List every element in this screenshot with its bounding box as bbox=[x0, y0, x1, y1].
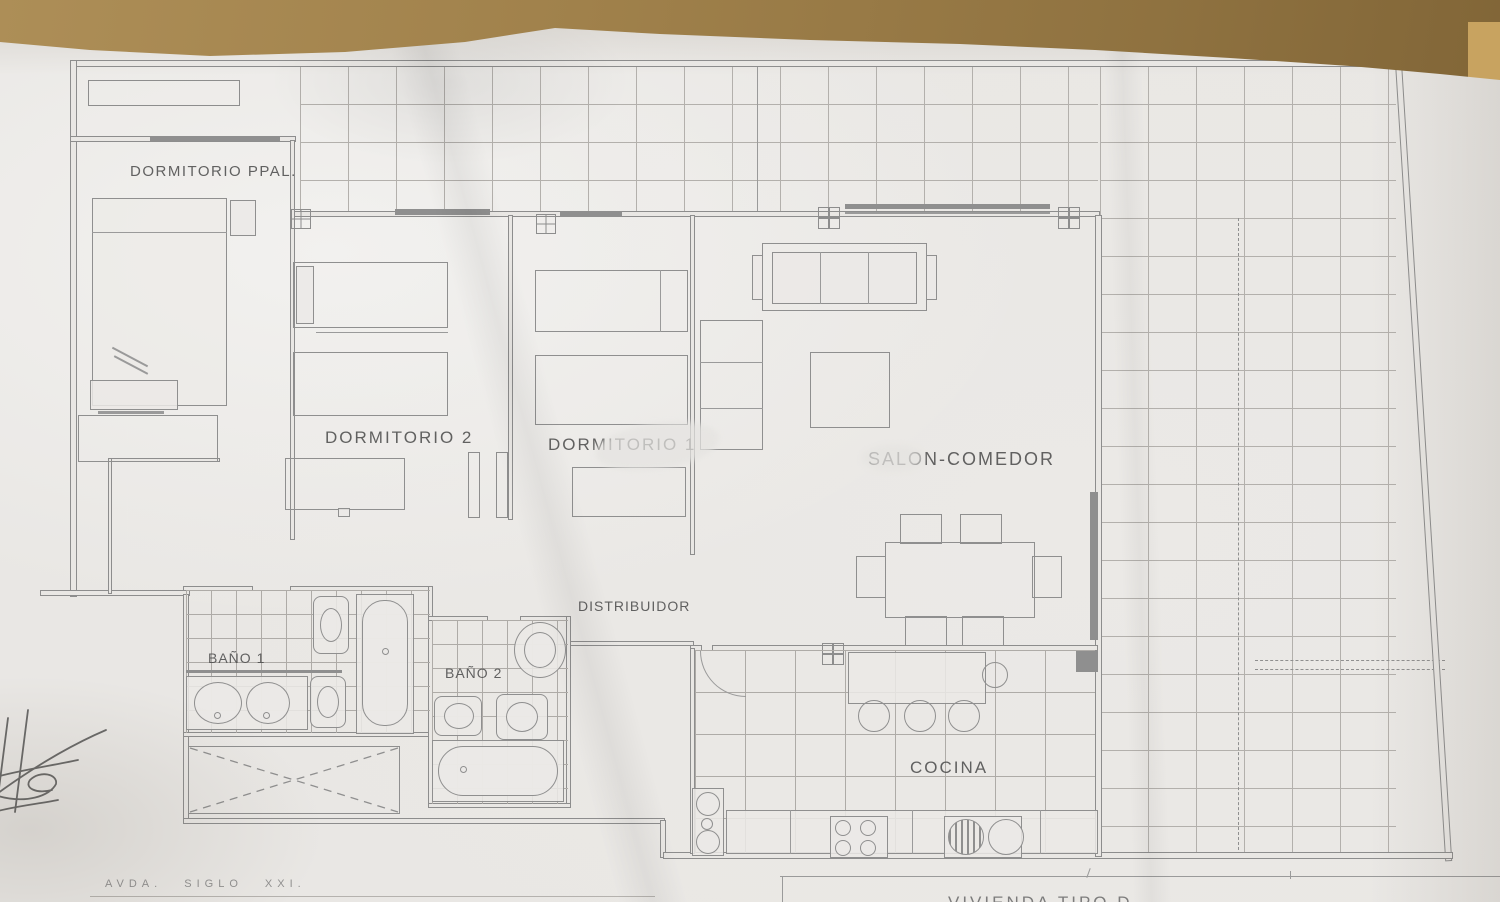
wall-segment bbox=[690, 215, 695, 555]
sink-tap bbox=[214, 712, 221, 719]
terrace-tiles-top bbox=[300, 66, 1098, 213]
bathtub-basin bbox=[362, 600, 408, 726]
photo-of-floor-plan: { "photo": { "surface": "wood-table", "c… bbox=[0, 0, 1500, 902]
smudge-over-salon-label bbox=[862, 445, 924, 471]
sink-tap bbox=[263, 712, 270, 719]
wall-segment bbox=[566, 641, 694, 646]
nightstand bbox=[230, 200, 256, 236]
wardrobe-dorm1 bbox=[572, 467, 686, 517]
window-salon bbox=[845, 204, 1050, 209]
bathtub-drain bbox=[382, 648, 389, 655]
sofa-armrest bbox=[752, 255, 763, 300]
wall-segment bbox=[468, 452, 480, 518]
bathtub-drain bbox=[460, 766, 467, 773]
title-block-partial: VIVIENDA TIPO D bbox=[948, 893, 1288, 902]
dining-table bbox=[885, 542, 1035, 618]
stove-burner bbox=[835, 820, 851, 836]
bed-master bbox=[92, 198, 227, 406]
sofa-divider bbox=[868, 252, 869, 304]
column-marker bbox=[818, 207, 840, 229]
sofa-divider bbox=[820, 252, 821, 304]
room-label-cocina: COCINA bbox=[910, 758, 988, 778]
terrace-tiles-right bbox=[1100, 66, 1396, 852]
stove-burner bbox=[860, 840, 876, 856]
cabinet-burner bbox=[696, 830, 720, 854]
paper-sheet: DORMITORIO PPAL. DORMITORIO 2 DORMITORIO… bbox=[0, 0, 1500, 902]
kitchen-stool bbox=[982, 662, 1008, 688]
sink-bowl bbox=[524, 632, 556, 668]
chair bbox=[962, 616, 1004, 646]
window-dorm1 bbox=[560, 211, 622, 217]
wall-segment bbox=[183, 818, 665, 824]
armchair-line bbox=[700, 362, 763, 363]
chair bbox=[900, 514, 942, 544]
wall-segment bbox=[70, 60, 1415, 67]
terrace-divider-line bbox=[757, 66, 758, 213]
column-marker bbox=[536, 214, 556, 234]
wall-segment bbox=[40, 590, 190, 596]
storage-closet-cross bbox=[188, 746, 400, 814]
wall-segment bbox=[496, 452, 508, 518]
kitchen-stool bbox=[858, 700, 890, 732]
counter-divider bbox=[912, 810, 913, 854]
room-label-distribuidor: DISTRIBUIDOR bbox=[578, 598, 690, 614]
wardrobe-dorm2 bbox=[285, 458, 405, 510]
bed-dorm1-1 bbox=[535, 270, 688, 332]
window-salon-line bbox=[845, 212, 1050, 214]
counter-divider bbox=[1040, 810, 1041, 854]
toilet-bowl bbox=[320, 608, 342, 642]
cabinet-burner bbox=[696, 792, 720, 816]
bidet-bowl bbox=[506, 702, 538, 732]
chair bbox=[960, 514, 1002, 544]
kitchen-stool bbox=[904, 700, 936, 732]
dresser bbox=[90, 380, 178, 410]
stove-burner bbox=[860, 820, 876, 836]
planter-box bbox=[88, 80, 240, 106]
bidet-bowl bbox=[317, 686, 339, 718]
title-block-partial-label: VIVIENDA TIPO D bbox=[948, 893, 1133, 902]
window-master bbox=[150, 136, 280, 141]
column-marker bbox=[291, 209, 311, 229]
sofa-seat bbox=[772, 252, 917, 304]
armchair-line bbox=[700, 408, 763, 409]
title-block-top-line bbox=[780, 876, 1500, 877]
bed-dorm2-1-pillow bbox=[296, 266, 314, 324]
chair bbox=[856, 556, 886, 598]
cabinet-burner-small bbox=[701, 818, 713, 830]
sofa-armrest bbox=[926, 255, 937, 300]
title-block-tick bbox=[1290, 871, 1291, 879]
kitchen-stool bbox=[948, 700, 980, 732]
terrace-dashed-line-1 bbox=[1255, 660, 1445, 661]
street-underline bbox=[90, 896, 655, 897]
signature-scribble bbox=[0, 700, 112, 820]
terrace-dashed-line-vertical bbox=[1238, 218, 1239, 850]
stove-burner bbox=[835, 840, 851, 856]
table-object bbox=[1468, 22, 1500, 86]
bed-dorm2-2 bbox=[293, 352, 448, 416]
room-label-bano-2: BAÑO 2 bbox=[445, 665, 502, 681]
wall-segment bbox=[108, 458, 112, 594]
counter-divider bbox=[790, 810, 791, 854]
wardrobe-master bbox=[78, 415, 218, 462]
door-salon-terrace bbox=[1090, 492, 1098, 640]
kitchen-sink-hatched bbox=[948, 819, 984, 855]
bathtub-basin bbox=[438, 746, 558, 796]
chair bbox=[905, 616, 947, 646]
bed-dorm2-1 bbox=[293, 262, 448, 328]
room-label-dormitorio-2: DORMITORIO 2 bbox=[325, 428, 473, 448]
column-marker bbox=[1058, 207, 1080, 229]
toilet-bowl bbox=[444, 703, 474, 729]
terrace-dashed-line-2 bbox=[1255, 669, 1445, 670]
title-block-tick bbox=[782, 876, 783, 902]
room-label-bano-1: BAÑO 1 bbox=[208, 650, 265, 666]
bed-master-pillow-line bbox=[92, 232, 227, 233]
kitchen-island bbox=[848, 652, 986, 704]
street-label: AVDA. SIGLO XXI. bbox=[105, 878, 306, 890]
coffee-table bbox=[810, 352, 890, 428]
window-dorm2 bbox=[395, 209, 490, 215]
wall-segment bbox=[508, 215, 513, 520]
bano1-separator bbox=[186, 670, 342, 673]
bed-dorm1-1-pillow-line bbox=[660, 270, 661, 332]
bed-dorm1-2 bbox=[535, 355, 688, 425]
chair bbox=[1032, 556, 1062, 598]
room-label-dormitorio-ppal: DORMITORIO PPAL. bbox=[130, 163, 297, 180]
wall-segment bbox=[1395, 63, 1452, 862]
wardrobe-master-shelf bbox=[98, 411, 164, 414]
wardrobe-knob bbox=[338, 508, 350, 517]
beds-gap-line bbox=[316, 332, 448, 333]
kitchen-sink-bowl bbox=[988, 819, 1024, 855]
